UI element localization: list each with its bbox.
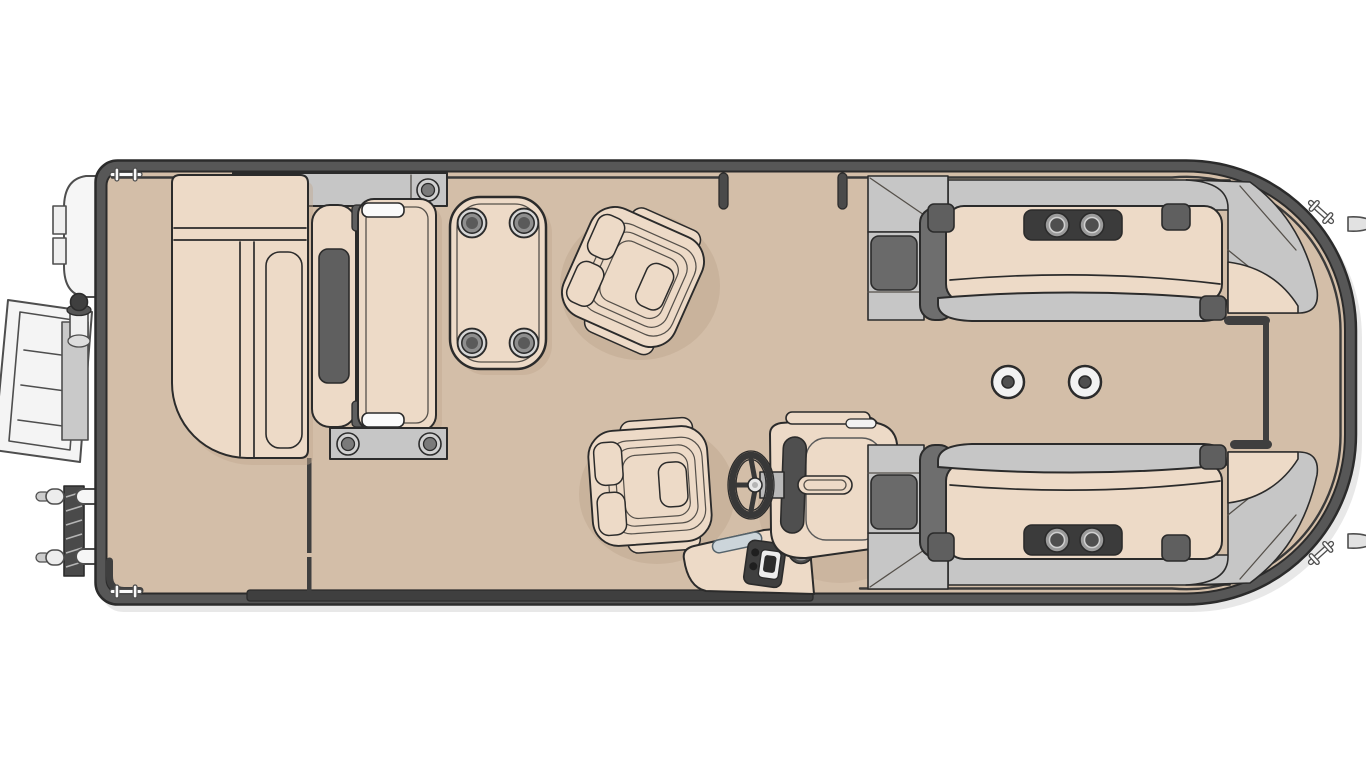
- steering-wheel: [728, 451, 774, 519]
- corner-cap: [928, 204, 954, 232]
- flip-seat-hinge-bottom: [362, 413, 404, 427]
- bow-eye-starboard-icon: [1348, 217, 1366, 231]
- dash-handle-pod: [798, 476, 852, 494]
- ladder-knob: [71, 294, 88, 311]
- bow-gate-panel: [1263, 320, 1269, 446]
- corner-cap: [928, 533, 954, 561]
- side-gate-post-left: [719, 173, 728, 209]
- table-cup-holder: [510, 209, 539, 238]
- armrest-pad: [871, 475, 917, 529]
- front-cap: [1200, 296, 1226, 320]
- table-base-mount: [1069, 366, 1101, 398]
- table-cup-holder: [458, 329, 487, 358]
- chaise-pad: [266, 252, 302, 448]
- flip-seat: [312, 199, 447, 459]
- bow-lounge-starboard: [868, 176, 1317, 321]
- table-cup-holder: [458, 209, 487, 238]
- front-edge-band: [938, 444, 1226, 473]
- armrest-pad: [871, 236, 917, 290]
- pontoon-floorplan-diagram: Pontoon boat floor plan - overhead deck …: [0, 0, 1366, 768]
- front-cap: [1200, 445, 1226, 469]
- console-fastener: [417, 179, 439, 201]
- flip-seat-lumbar-pad: [319, 249, 349, 383]
- front-edge-band: [938, 292, 1226, 321]
- bow-lounge-port: [868, 444, 1317, 589]
- flip-seat-cushion: [358, 199, 436, 431]
- cup-holder: [1080, 528, 1104, 552]
- pod-bracket-upper: [53, 206, 66, 234]
- table-base-mount: [992, 366, 1024, 398]
- helm-top-pill: [846, 419, 876, 428]
- bracket-bolt: [337, 433, 359, 455]
- cup-holder: [1045, 528, 1069, 552]
- cup-holder-armrest: [1024, 210, 1122, 240]
- corner-cap: [1162, 204, 1190, 230]
- chaise-lounge: [172, 175, 313, 465]
- floorplan-stage: Overhead line-art floor plan of a pontoo…: [0, 0, 1366, 768]
- cup-holder-armrest: [1024, 525, 1122, 555]
- bracket-bolt: [419, 433, 441, 455]
- deck-partition-wall-lower: [307, 557, 312, 592]
- cup-holder: [1080, 213, 1104, 237]
- captain-swivel-chair: [586, 416, 714, 556]
- swim-ladder-extended: [0, 294, 92, 463]
- table-cup-holder: [510, 329, 539, 358]
- bow-eye-port-icon: [1348, 534, 1366, 548]
- corner-cap: [1162, 535, 1190, 561]
- cocktail-table: [450, 197, 552, 375]
- deck-partition-wall-upper: [307, 458, 312, 553]
- cup-holder: [1045, 213, 1069, 237]
- flip-seat-hinge-top: [362, 203, 404, 217]
- pod-bracket-lower: [53, 238, 66, 264]
- side-gate-post-right: [838, 173, 847, 209]
